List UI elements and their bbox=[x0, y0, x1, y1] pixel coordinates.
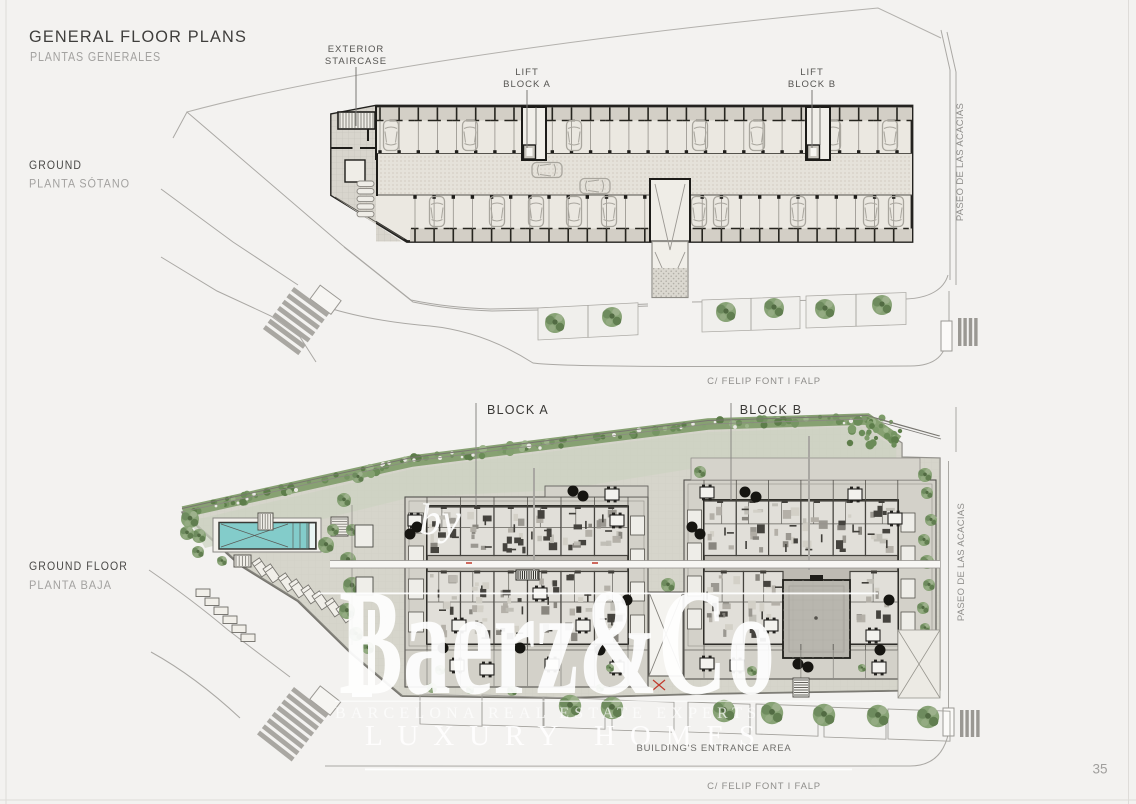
svg-text:35: 35 bbox=[1092, 762, 1107, 777]
svg-text:BUILDING'S ENTRANCE AREA: BUILDING'S ENTRANCE AREA bbox=[636, 743, 791, 754]
svg-text:C/ FELIP FONT I FALP: C/ FELIP FONT I FALP bbox=[707, 781, 821, 792]
svg-text:STAIRCASE: STAIRCASE bbox=[325, 56, 387, 67]
svg-text:C/ FELIP FONT I FALP: C/ FELIP FONT I FALP bbox=[707, 376, 821, 387]
svg-text:PLANTA SÓTANO: PLANTA SÓTANO bbox=[29, 178, 130, 191]
svg-text:PASEO DE LAS ACACIAS: PASEO DE LAS ACACIAS bbox=[956, 503, 967, 621]
svg-text:GROUND FLOOR: GROUND FLOOR bbox=[29, 561, 128, 573]
svg-text:LIFT: LIFT bbox=[515, 67, 539, 78]
svg-text:PLANTA BAJA: PLANTA BAJA bbox=[29, 580, 112, 592]
svg-text:BLOCK A: BLOCK A bbox=[503, 79, 551, 90]
svg-text:EXTERIOR: EXTERIOR bbox=[328, 44, 385, 55]
svg-text:GENERAL FLOOR PLANS: GENERAL FLOOR PLANS bbox=[29, 27, 247, 46]
svg-text:PLANTAS GENERALES: PLANTAS GENERALES bbox=[30, 50, 161, 64]
svg-text:GROUND: GROUND bbox=[29, 160, 82, 172]
svg-text:BLOCK A: BLOCK A bbox=[487, 403, 549, 417]
svg-text:BLOCK B: BLOCK B bbox=[788, 79, 836, 90]
svg-text:PASEO DE LAS ACACIAS: PASEO DE LAS ACACIAS bbox=[955, 103, 966, 221]
svg-text:LIFT: LIFT bbox=[800, 67, 824, 78]
svg-text:BLOCK B: BLOCK B bbox=[740, 403, 803, 417]
svg-text:by: by bbox=[419, 495, 461, 544]
